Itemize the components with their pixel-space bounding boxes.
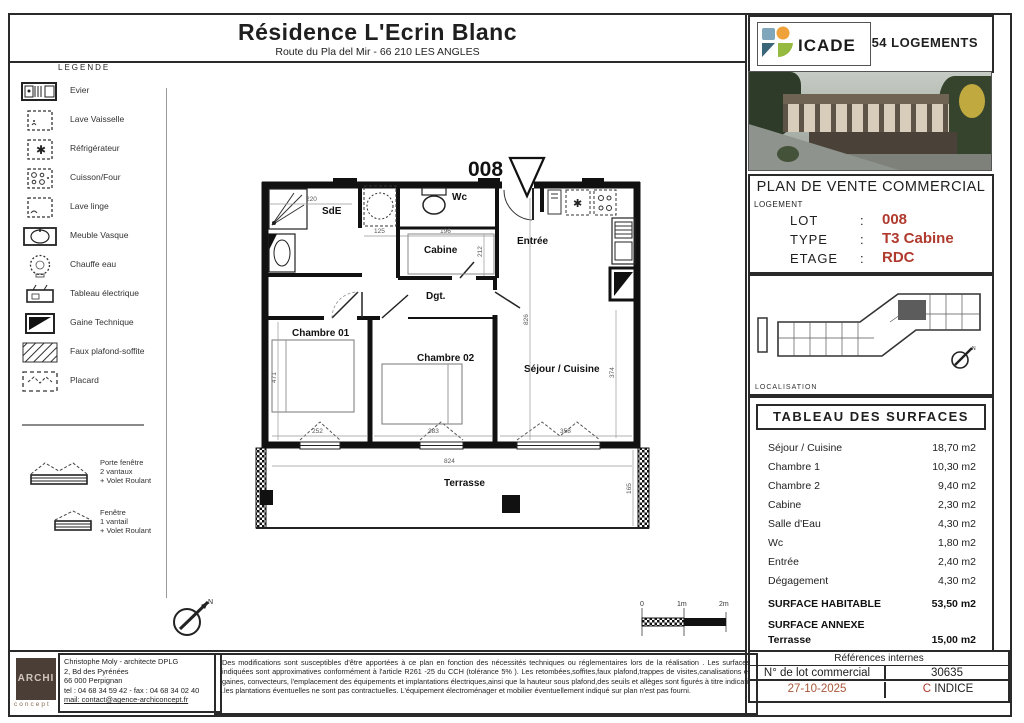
legend-label: Cuisson/Four bbox=[70, 172, 121, 182]
surface-annexe-heading: SURFACE ANNEXE bbox=[768, 619, 864, 631]
etage-label: ETAGE bbox=[790, 251, 838, 266]
legend-label: Réfrigérateur bbox=[70, 143, 120, 153]
tableau-electrique-icon bbox=[20, 283, 60, 307]
archi-concept-logo: ARCHI bbox=[16, 658, 56, 700]
units-count: 54 LOGEMENTS bbox=[872, 35, 978, 50]
icade-logo-text: ICADE bbox=[798, 36, 856, 55]
disclaimer-text: Des modifications sont susceptibles d'êt… bbox=[214, 653, 758, 715]
room-label-terrasse: Terrasse bbox=[444, 478, 485, 489]
legend-item: Lave linge bbox=[20, 196, 170, 220]
page-title: Résidence L'Ecrin Blanc bbox=[10, 19, 745, 46]
surface-value: 1,80 m2 bbox=[938, 537, 976, 549]
chauffe-eau bbox=[364, 186, 396, 226]
surface-label: Cabine bbox=[768, 499, 801, 511]
localisation-box: N LOCALISATION bbox=[748, 274, 994, 396]
localisation-label: LOCALISATION bbox=[755, 384, 817, 391]
room-label-entree: Entrée bbox=[517, 236, 549, 247]
terrasse-value: 15,00 m2 bbox=[932, 634, 976, 646]
legend-label: Gaine Technique bbox=[70, 317, 134, 327]
window-chambre2 bbox=[420, 422, 463, 449]
svg-text:212: 212 bbox=[477, 246, 484, 257]
lot-label: LOT bbox=[790, 213, 818, 228]
svg-text:826: 826 bbox=[523, 314, 530, 325]
architect-info: Christophe Moly - architecte DPLG 2, Bd … bbox=[58, 653, 222, 713]
legend-label: Lave linge bbox=[70, 201, 109, 211]
lot-commercial-value: 30635 bbox=[884, 665, 1008, 681]
room-label-chambre1: Chambre 01 bbox=[292, 328, 350, 339]
legend-item: Lave Vaisselle bbox=[20, 109, 170, 133]
window-sejour bbox=[517, 422, 600, 449]
svg-text:252: 252 bbox=[312, 428, 323, 435]
room-label-sde: SdE bbox=[322, 206, 342, 217]
title-block: Résidence L'Ecrin Blanc Route du Pla del… bbox=[10, 15, 745, 63]
legend-item: Chauffe eau bbox=[20, 254, 170, 278]
icade-logo-mark bbox=[762, 27, 793, 58]
icade-logo: ICADE bbox=[757, 22, 871, 66]
lave-vaisselle-icon bbox=[20, 109, 60, 133]
evier bbox=[612, 218, 635, 264]
highlighted-lot bbox=[898, 300, 926, 320]
entrance-triangle-marker bbox=[510, 158, 544, 196]
legend-label: Placard bbox=[70, 375, 99, 385]
lot-value: 008 bbox=[882, 211, 907, 228]
svg-text:358: 358 bbox=[560, 428, 571, 435]
surface-value: 2,30 m2 bbox=[938, 499, 976, 511]
svg-text:1m: 1m bbox=[677, 601, 687, 608]
bed-chambre2 bbox=[382, 364, 462, 424]
logement-box: LOGEMENT LOT : 008 TYPE : T3 Cabine ETAG… bbox=[748, 198, 994, 274]
localisation-north-icon: N bbox=[952, 346, 976, 368]
tableau-electrique bbox=[548, 190, 561, 214]
indice-cell: C INDICE bbox=[884, 682, 1010, 698]
legend-item: Cuisson/Four bbox=[20, 167, 170, 191]
vasque bbox=[269, 234, 295, 272]
svg-text:196: 196 bbox=[440, 228, 451, 235]
plan-lot-marker: 008 bbox=[468, 158, 503, 181]
legend-item: Faux plafond-soffite bbox=[20, 341, 170, 365]
plan-sheet: Résidence L'Ecrin Blanc Route du Pla del… bbox=[0, 0, 1024, 723]
chauffe-eau-icon bbox=[20, 254, 60, 278]
lave-linge-icon bbox=[20, 196, 60, 220]
page-subtitle: Route du Pla del Mir - 66 210 LES ANGLES bbox=[10, 46, 745, 58]
terrasse-label: Terrasse bbox=[768, 634, 811, 646]
interior-doors bbox=[332, 262, 520, 318]
localisation-map: N bbox=[750, 276, 988, 376]
room-label-sejour: Séjour / Cuisine bbox=[524, 364, 600, 375]
fenetre-icon bbox=[52, 508, 96, 539]
surfaces-heading: TABLEAU DES SURFACES bbox=[756, 404, 986, 430]
svg-text:824: 824 bbox=[444, 458, 455, 465]
surface-value: 10,30 m2 bbox=[932, 461, 976, 473]
logement-heading: LOGEMENT bbox=[754, 200, 803, 209]
surface-label: Chambre 1 bbox=[768, 461, 820, 473]
svg-text:383: 383 bbox=[428, 428, 439, 435]
references-heading: Références internes bbox=[750, 652, 1008, 666]
legend-label: Faux plafond-soffite bbox=[70, 346, 145, 356]
type-value: T3 Cabine bbox=[882, 230, 954, 247]
legend-item: Placard bbox=[20, 370, 170, 394]
etage-value: RDC bbox=[882, 249, 915, 266]
surface-habitable-label: SURFACE HABITABLE bbox=[768, 598, 881, 610]
legend-item: Tableau électrique bbox=[20, 283, 170, 307]
references-table: Références internes N° de lot commercial… bbox=[748, 650, 1010, 703]
surface-habitable-value: 53,50 m2 bbox=[932, 598, 976, 610]
legend-label: Lave Vaisselle bbox=[70, 114, 124, 124]
svg-text:220: 220 bbox=[306, 196, 317, 203]
scale-bar: 0 1m 2m bbox=[640, 601, 729, 636]
svg-text:✱: ✱ bbox=[573, 198, 582, 210]
surface-value: 9,40 m2 bbox=[938, 480, 976, 492]
room-label-cabine: Cabine bbox=[424, 245, 458, 256]
lot-commercial-label: N° de lot commercial bbox=[750, 665, 884, 681]
legend-label: Evier bbox=[70, 85, 89, 95]
surface-value: 18,70 m2 bbox=[932, 442, 976, 454]
surface-label: Entrée bbox=[768, 556, 799, 568]
window-chambre1 bbox=[300, 422, 340, 449]
gaine-technique bbox=[610, 268, 637, 300]
svg-text:471: 471 bbox=[271, 372, 278, 383]
legend-item: ✱ Réfrigérateur bbox=[20, 138, 170, 162]
svg-text:N: N bbox=[972, 346, 976, 352]
surface-label: Salle d'Eau bbox=[768, 518, 821, 530]
surface-label: Séjour / Cuisine bbox=[768, 442, 842, 454]
refrigerateur: ✱ bbox=[566, 190, 590, 215]
cuisson-four bbox=[594, 190, 616, 215]
svg-text:0: 0 bbox=[640, 601, 644, 608]
legend-item: Meuble Vasque bbox=[20, 225, 170, 249]
room-label-chambre2: Chambre 02 bbox=[417, 353, 475, 364]
porte-fenetre-icon bbox=[28, 458, 90, 493]
doc-title-box: PLAN DE VENTE COMMERCIAL bbox=[748, 174, 994, 200]
doc-title: PLAN DE VENTE COMMERCIAL bbox=[757, 179, 986, 195]
svg-text:165: 165 bbox=[626, 483, 633, 494]
surface-label: Chambre 2 bbox=[768, 480, 820, 492]
surface-label: Wc bbox=[768, 537, 783, 549]
shower bbox=[269, 189, 307, 229]
legend-heading: LEGENDE bbox=[58, 63, 110, 72]
surfaces-box: TABLEAU DES SURFACES Séjour / Cuisine18,… bbox=[748, 396, 994, 652]
surface-value: 4,30 m2 bbox=[938, 518, 976, 530]
svg-text:374: 374 bbox=[609, 367, 616, 378]
footer-divider bbox=[8, 650, 747, 652]
legend-label: Meuble Vasque bbox=[70, 230, 128, 240]
placard-icon bbox=[20, 370, 60, 394]
indice-word: INDICE bbox=[934, 683, 973, 695]
archi-concept-label: concept bbox=[14, 701, 51, 708]
legend-separator bbox=[22, 424, 144, 426]
svg-text:✱: ✱ bbox=[36, 143, 46, 157]
toilet bbox=[422, 188, 446, 214]
svg-text:2m: 2m bbox=[719, 601, 729, 608]
bed-chambre1 bbox=[272, 340, 354, 412]
north-arrow-icon: N bbox=[168, 595, 216, 646]
room-label-wc: Wc bbox=[452, 192, 467, 203]
svg-text:125: 125 bbox=[374, 228, 385, 235]
legend-item: Gaine Technique bbox=[20, 312, 170, 336]
evier-icon bbox=[20, 80, 60, 104]
indice-letter: C bbox=[923, 683, 931, 695]
faux-plafond-icon bbox=[20, 341, 60, 365]
type-label: TYPE bbox=[790, 232, 828, 247]
legend-item: Evier bbox=[20, 80, 170, 104]
cuisson-four-icon bbox=[20, 167, 60, 191]
meuble-vasque-icon bbox=[20, 225, 60, 249]
room-label-dgt: Dgt. bbox=[426, 291, 446, 302]
porte-fenetre-label: Porte fenêtre2 vantaux+ Volet Roulant bbox=[100, 458, 151, 485]
surface-value: 4,30 m2 bbox=[938, 575, 976, 587]
architect-email: mail: contact@agence-archiconcept.fr bbox=[64, 695, 216, 705]
surface-label: Dégagement bbox=[768, 575, 828, 587]
surface-value: 2,40 m2 bbox=[938, 556, 976, 568]
refrigerateur-icon: ✱ bbox=[20, 138, 60, 162]
brand-box: ICADE 54 LOGEMENTS bbox=[748, 15, 994, 73]
plan-date: 27-10-2025 bbox=[750, 682, 884, 698]
legend-label: Chauffe eau bbox=[70, 259, 116, 269]
floor-plan: 008 bbox=[212, 150, 752, 642]
gaine-technique-icon bbox=[20, 312, 60, 336]
legend-label: Tableau électrique bbox=[70, 288, 139, 298]
fenetre-label: Fenêtre1 vantail+ Volet Roulant bbox=[100, 508, 151, 535]
building-photo bbox=[748, 71, 992, 171]
